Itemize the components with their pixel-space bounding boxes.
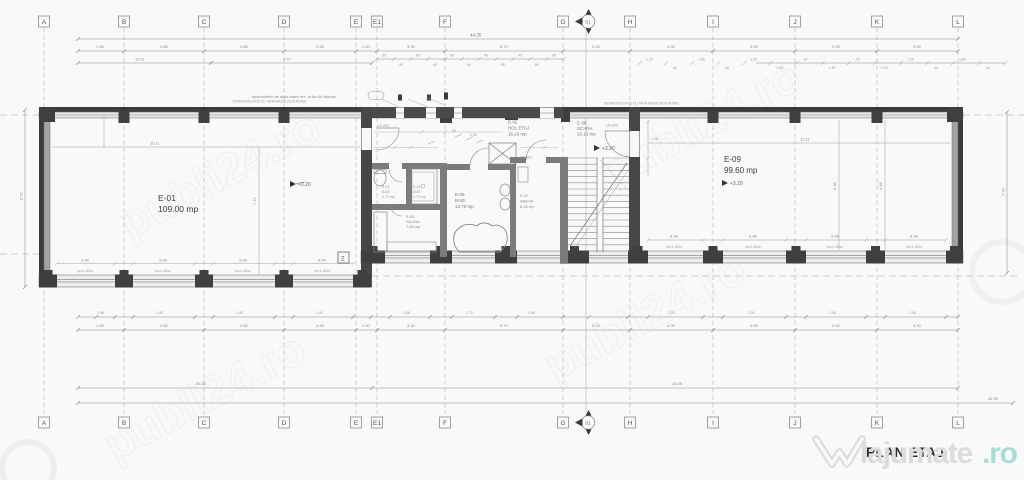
- svg-text:.60: .60: [466, 63, 471, 67]
- svg-text:2.20: 2.20: [668, 311, 675, 315]
- svg-text:2.70 mp: 2.70 mp: [382, 195, 395, 199]
- svg-text:B: B: [122, 19, 126, 26]
- svg-text:A: A: [42, 420, 47, 427]
- svg-text:2: 2: [341, 256, 345, 263]
- svg-text:UD-90C: UD-90C: [520, 156, 533, 160]
- svg-text:.60: .60: [534, 63, 539, 67]
- svg-text:4.00: 4.00: [667, 323, 676, 328]
- svg-text:hp=1.50m: hp=1.50m: [77, 269, 93, 273]
- svg-text:2.50: 2.50: [748, 311, 755, 315]
- svg-text:3.85: 3.85: [160, 323, 169, 328]
- svg-text:10.11: 10.11: [135, 57, 145, 62]
- svg-text:3.08: 3.08: [239, 258, 248, 263]
- svg-text:UD-80E: UD-80E: [377, 124, 390, 128]
- svg-text:S1: S1: [585, 421, 591, 427]
- svg-text:.40: .40: [672, 66, 677, 70]
- svg-text:2.40: 2.40: [829, 311, 836, 315]
- svg-text:.40: .40: [803, 58, 808, 62]
- svg-text:3.85: 3.85: [240, 44, 249, 49]
- svg-text:DUS: DUS: [413, 190, 421, 194]
- svg-text:36.32: 36.32: [196, 381, 207, 386]
- svg-text:.90: .90: [551, 54, 556, 58]
- svg-text:.40: .40: [432, 63, 437, 67]
- svg-text:8.52: 8.52: [19, 191, 24, 200]
- svg-text:G: G: [560, 19, 565, 26]
- svg-text:3.90: 3.90: [913, 323, 922, 328]
- svg-text:1.80: 1.80: [698, 58, 705, 62]
- svg-text:44.95: 44.95: [988, 396, 999, 401]
- svg-text:3.95: 3.95: [750, 44, 759, 49]
- svg-text:hp=1.50m: hp=1.50m: [235, 269, 251, 273]
- svg-text:.ro: .ro: [982, 437, 1018, 470]
- svg-text:.80: .80: [415, 54, 420, 58]
- svg-text:+3.20: +3.20: [298, 182, 311, 188]
- svg-text:3.98: 3.98: [749, 234, 758, 239]
- svg-text:3.95: 3.95: [832, 323, 841, 328]
- svg-text:hp=1.50m: hp=1.50m: [155, 269, 171, 273]
- svg-text:hp=1.50m: hp=1.50m: [745, 245, 761, 249]
- svg-text:E-02: E-02: [508, 120, 518, 125]
- svg-text:5.70: 5.70: [500, 323, 509, 328]
- svg-text:4.48: 4.48: [832, 181, 837, 190]
- svg-text:E: E: [354, 19, 359, 26]
- svg-text:E-09: E-09: [724, 155, 741, 164]
- svg-text:6.25 mp: 6.25 mp: [520, 204, 535, 209]
- svg-text:D: D: [282, 19, 287, 26]
- svg-text:1.00: 1.00: [362, 323, 371, 328]
- svg-text:E-04: E-04: [413, 185, 420, 189]
- svg-text:I: I: [712, 420, 714, 427]
- svg-text:16.10 mp: 16.10 mp: [508, 132, 527, 137]
- svg-text:TERMOIZOLATIE CU VATA BAZALTIC: TERMOIZOLATIE CU VATA BAZALTICA ROSIE: [604, 102, 679, 106]
- svg-text:.90: .90: [381, 54, 386, 58]
- svg-text:3.85: 3.85: [240, 323, 249, 328]
- svg-text:1.85: 1.85: [528, 311, 535, 315]
- svg-text:C: C: [202, 19, 207, 26]
- svg-text:2.48: 2.48: [236, 311, 243, 315]
- svg-text:E1: E1: [373, 420, 381, 427]
- svg-text:hp=1.50m: hp=1.50m: [906, 245, 922, 249]
- svg-text:E1: E1: [373, 19, 381, 26]
- svg-text:E-06: E-06: [455, 192, 465, 197]
- svg-text:7.30: 7.30: [1001, 187, 1006, 196]
- svg-text:3.95: 3.95: [750, 323, 759, 328]
- svg-text:1.58: 1.58: [403, 311, 410, 315]
- svg-text:L: L: [956, 19, 960, 26]
- svg-text:H: H: [628, 19, 633, 26]
- svg-text:2.48: 2.48: [156, 311, 163, 315]
- svg-text:15.11: 15.11: [800, 137, 810, 142]
- svg-text:10.10 mp: 10.10 mp: [577, 132, 596, 137]
- svg-text:C: C: [202, 420, 207, 427]
- svg-text:2.40: 2.40: [909, 311, 916, 315]
- svg-text:3.48: 3.48: [316, 323, 325, 328]
- svg-text:28.05: 28.05: [672, 381, 683, 386]
- svg-text:K: K: [875, 420, 880, 427]
- svg-text:BAIE: BAIE: [382, 190, 391, 194]
- svg-text:3.30: 3.30: [407, 44, 416, 49]
- svg-text:.40: .40: [933, 66, 938, 70]
- svg-text:.40: .40: [855, 58, 860, 62]
- svg-text:2.40: 2.40: [316, 311, 323, 315]
- svg-text:109.00 mp: 109.00 mp: [158, 204, 198, 214]
- svg-text:3.25: 3.25: [592, 44, 601, 49]
- svg-text:4.48: 4.48: [878, 181, 883, 190]
- svg-text:3.08: 3.08: [318, 258, 327, 263]
- svg-text:A: A: [42, 19, 47, 26]
- svg-text:1.80: 1.80: [829, 66, 836, 70]
- svg-text:1.80: 1.80: [959, 58, 966, 62]
- svg-text:1.70: 1.70: [466, 311, 473, 315]
- svg-text:1.98: 1.98: [96, 44, 105, 49]
- svg-text:E-01: E-01: [158, 193, 176, 203]
- svg-text:3.85: 3.85: [160, 44, 169, 49]
- svg-text:1.20: 1.20: [646, 58, 653, 62]
- svg-text:13.70 mp: 13.70 mp: [455, 204, 474, 209]
- svg-text:3.98: 3.98: [670, 234, 679, 239]
- svg-text:90: 90: [452, 129, 456, 133]
- svg-text:I: I: [712, 19, 714, 26]
- svg-text:E-03: E-03: [382, 185, 389, 189]
- svg-text:S1: S1: [585, 20, 591, 26]
- svg-text:7.72: 7.72: [283, 57, 292, 62]
- svg-text:hp=1.50m: hp=1.50m: [827, 245, 843, 249]
- svg-text:1.20: 1.20: [750, 58, 757, 62]
- svg-text:.90: .90: [449, 54, 454, 58]
- svg-text:1.60: 1.60: [881, 66, 888, 70]
- svg-text:F: F: [443, 420, 447, 427]
- svg-text:D: D: [282, 420, 287, 427]
- svg-text:SCARA: SCARA: [577, 126, 593, 131]
- svg-text:J: J: [793, 420, 796, 427]
- svg-text:1.40: 1.40: [470, 133, 477, 137]
- svg-text:3.25: 3.25: [592, 323, 601, 328]
- svg-text:99.60 mp: 99.60 mp: [724, 166, 758, 175]
- svg-text:TERMOIZOLATIE CU VATA BAZALTIC: TERMOIZOLATIE CU VATA BAZALTICA ROSIE: [232, 100, 307, 104]
- svg-text:E: E: [354, 420, 359, 427]
- svg-text:ANEXA: ANEXA: [520, 199, 534, 204]
- svg-text:3.08: 3.08: [81, 258, 90, 263]
- svg-text:+3.20: +3.20: [602, 146, 615, 152]
- svg-text:HOL ETAJ: HOL ETAJ: [508, 126, 529, 131]
- svg-text:hp=1.50m: hp=1.50m: [666, 245, 682, 249]
- svg-text:1.20: 1.20: [907, 58, 914, 62]
- svg-text:3.48: 3.48: [316, 44, 325, 49]
- svg-text:J: J: [793, 19, 796, 26]
- svg-text:44.35: 44.35: [470, 33, 482, 38]
- svg-text:1.60: 1.60: [777, 66, 784, 70]
- svg-text:7.00 mp: 7.00 mp: [406, 224, 421, 229]
- svg-text:1.00: 1.00: [362, 44, 371, 49]
- svg-text:3.95: 3.95: [832, 44, 841, 49]
- svg-text:+3.20: +3.20: [730, 181, 743, 187]
- svg-text:1.98: 1.98: [97, 311, 104, 315]
- svg-text:UD-80E: UD-80E: [606, 124, 619, 128]
- svg-text:hp=1.50m: hp=1.50m: [314, 269, 330, 273]
- svg-text:4.00: 4.00: [667, 44, 676, 49]
- svg-text:3.90: 3.90: [913, 44, 922, 49]
- svg-text:B: B: [122, 420, 126, 427]
- svg-text:deschiderile de alela mare rez: deschiderile de alela mare rez. la foc 6…: [252, 94, 337, 99]
- svg-text:H: H: [628, 420, 633, 427]
- svg-text:3.08: 3.08: [159, 258, 168, 263]
- svg-text:E-07: E-07: [520, 193, 529, 198]
- svg-text:3.98: 3.98: [910, 234, 919, 239]
- svg-text:.40: .40: [724, 66, 729, 70]
- svg-text:3.98: 3.98: [831, 234, 840, 239]
- svg-text:.40: .40: [483, 54, 488, 58]
- svg-text:F: F: [443, 19, 447, 26]
- svg-text:.80: .80: [500, 63, 505, 67]
- svg-text:1.98: 1.98: [651, 137, 658, 141]
- svg-text:7.72: 7.72: [252, 196, 257, 205]
- svg-text:.40: .40: [517, 54, 522, 58]
- svg-text:L: L: [956, 420, 960, 427]
- svg-text:10.11: 10.11: [150, 141, 160, 146]
- svg-text:1.70 mp: 1.70 mp: [413, 195, 426, 199]
- svg-text:lajumate: lajumate: [860, 437, 973, 470]
- svg-text:5.70: 5.70: [500, 44, 509, 49]
- svg-text:BAIE: BAIE: [455, 198, 465, 203]
- svg-text:3.30: 3.30: [407, 323, 416, 328]
- svg-text:K: K: [875, 19, 880, 26]
- svg-text:.40: .40: [985, 66, 990, 70]
- svg-text:.40: .40: [398, 63, 403, 67]
- svg-text:G: G: [560, 420, 565, 427]
- svg-text:1.98: 1.98: [96, 323, 105, 328]
- svg-text:E-08: E-08: [577, 121, 587, 126]
